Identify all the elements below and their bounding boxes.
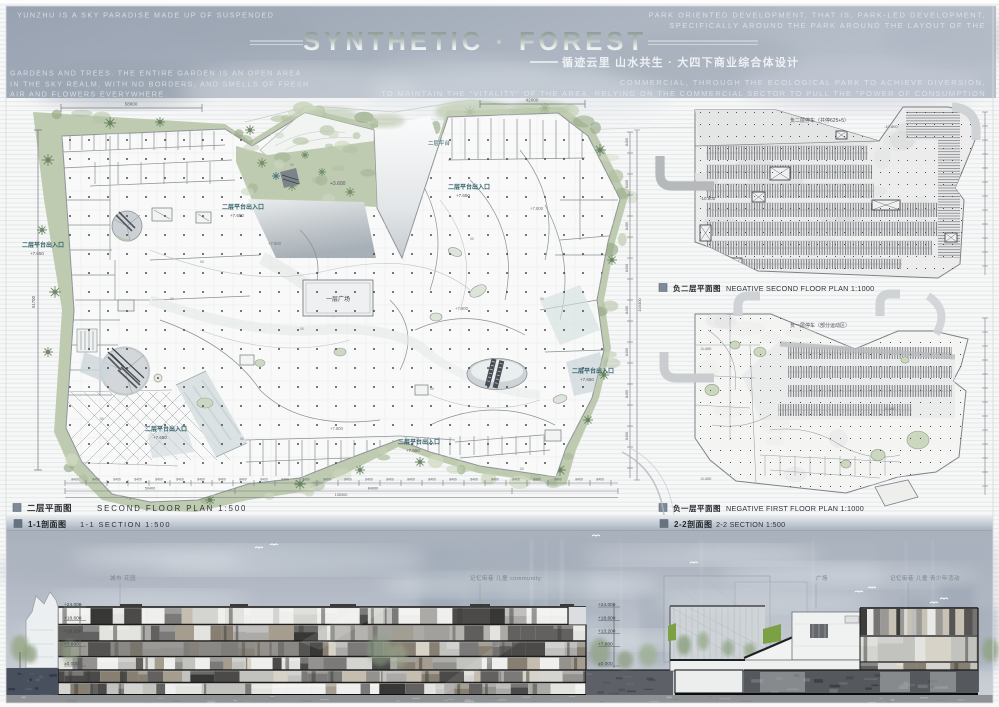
svg-text:2-2 SECTION 1:500: 2-2 SECTION 1:500: [716, 520, 785, 529]
svg-text:8400: 8400: [428, 478, 436, 482]
svg-text:42000: 42000: [526, 98, 539, 103]
svg-text:+7.800: +7.800: [455, 306, 469, 311]
svg-text:+7.650: +7.650: [406, 448, 420, 453]
svg-text:8400: 8400: [134, 478, 142, 482]
svg-text:88: 88: [540, 297, 544, 301]
svg-text:1-1 SECTION 1:500: 1-1 SECTION 1:500: [80, 520, 171, 529]
svg-text:SPECIFICALLY AROUND THE PARK A: SPECIFICALLY AROUND THE PARK AROUND THE …: [669, 21, 986, 30]
svg-text:88: 88: [300, 327, 304, 331]
svg-text:-5.400: -5.400: [700, 346, 712, 351]
svg-text:8400: 8400: [625, 390, 629, 398]
svg-text:8400: 8400: [92, 478, 100, 482]
svg-text:8400: 8400: [625, 138, 629, 146]
svg-text:84000: 84000: [368, 487, 379, 491]
svg-text:负一层停车（部分运动区）: 负一层停车（部分运动区）: [790, 322, 850, 329]
svg-text:NEGATIVE FIRST FLOOR PLAN 1:1: NEGATIVE FIRST FLOOR PLAN 1:1000: [726, 504, 864, 513]
svg-text:8400: 8400: [386, 478, 394, 482]
svg-text:88: 88: [290, 163, 294, 167]
svg-text:8400: 8400: [625, 264, 629, 272]
svg-text:广场: 广场: [816, 574, 828, 582]
svg-text:+7.650: +7.650: [456, 193, 470, 198]
svg-text:8400: 8400: [239, 478, 247, 482]
svg-text:8400: 8400: [302, 478, 310, 482]
svg-text:循迹云里 山水共生 · 大四下商业综合体设计: 循迹云里 山水共生 · 大四下商业综合体设计: [562, 55, 799, 69]
svg-text:记忆街巷 儿童 青少年活动: 记忆街巷 儿童 青少年活动: [890, 574, 960, 582]
svg-text:二层平面图: 二层平面图: [27, 503, 72, 513]
svg-text:2-2剖面图: 2-2剖面图: [674, 519, 713, 529]
svg-text:8400: 8400: [113, 478, 121, 482]
svg-text:-10.800: -10.800: [884, 124, 898, 129]
svg-text:8400: 8400: [625, 222, 629, 230]
svg-text:城市 花园: 城市 花园: [110, 574, 136, 582]
svg-text:50400: 50400: [145, 487, 156, 491]
svg-text:8400: 8400: [533, 478, 541, 482]
svg-text:135300: 135300: [335, 493, 348, 497]
svg-text:88: 88: [520, 467, 524, 471]
svg-text:+7.650: +7.650: [153, 435, 167, 440]
svg-text:二层平台出入口: 二层平台出入口: [572, 367, 614, 375]
svg-text:88: 88: [100, 417, 104, 421]
svg-text:8400: 8400: [625, 432, 629, 440]
svg-text:8400: 8400: [625, 306, 629, 314]
svg-text:8400: 8400: [281, 478, 289, 482]
svg-text:GARDENS AND TREES. THE ENTIRE: GARDENS AND TREES. THE ENTIRE GARDEN IS …: [10, 69, 302, 78]
svg-text:+7.650: +7.650: [230, 213, 244, 218]
svg-text:8400: 8400: [365, 478, 373, 482]
svg-text:8400: 8400: [625, 180, 629, 188]
svg-text:1-1剖面图: 1-1剖面图: [28, 519, 67, 529]
svg-text:8400: 8400: [218, 478, 226, 482]
svg-text:8400: 8400: [625, 348, 629, 356]
svg-text:8400: 8400: [512, 478, 520, 482]
svg-text:88: 88: [200, 260, 204, 264]
svg-text:8400: 8400: [554, 478, 562, 482]
svg-text:负一层平面图: 负一层平面图: [673, 503, 721, 513]
svg-text:COMMERCIAL, THROUGH THE ECOLOG: COMMERCIAL, THROUGH THE ECOLOGICAL PARK …: [620, 78, 986, 87]
svg-text:8400: 8400: [260, 478, 268, 482]
svg-text:8400: 8400: [323, 478, 331, 482]
svg-text:88: 88: [170, 297, 174, 301]
svg-text:负二层停车（共停625+5）: 负二层停车（共停625+5）: [790, 117, 849, 124]
svg-text:8400: 8400: [407, 478, 415, 482]
svg-text:PARK ORIENTED DEVELOPMENT, THA: PARK ORIENTED DEVELOPMENT, THAT IS, PARK…: [649, 11, 986, 20]
svg-text:88: 88: [240, 437, 244, 441]
svg-text:103400: 103400: [637, 298, 642, 312]
svg-text:+7.650: +7.650: [580, 377, 594, 382]
svg-text:+7.800: +7.800: [330, 426, 344, 431]
svg-text:-5.400: -5.400: [700, 476, 712, 481]
svg-text:8400: 8400: [344, 478, 352, 482]
svg-text:-10.800: -10.800: [700, 196, 716, 201]
svg-text:+7.800: +7.800: [268, 241, 282, 246]
svg-text:61700: 61700: [31, 295, 36, 308]
svg-text:8400: 8400: [449, 478, 457, 482]
svg-text:二层平台出入口: 二层平台出入口: [22, 241, 64, 249]
svg-text:8400: 8400: [596, 478, 604, 482]
svg-text:二层平台出入口: 二层平台出入口: [398, 438, 440, 446]
svg-text:8400: 8400: [470, 478, 478, 482]
svg-text:8400: 8400: [176, 478, 184, 482]
svg-text:+3.600: +3.600: [330, 181, 346, 187]
svg-text:8400: 8400: [71, 478, 79, 482]
svg-text:8400: 8400: [197, 478, 205, 482]
svg-text:8400: 8400: [155, 478, 163, 482]
svg-text:TO MAINTAIN THE "VITALITY" OF: TO MAINTAIN THE "VITALITY" OF THE AREA, …: [381, 89, 986, 98]
svg-text:一层广场: 一层广场: [326, 295, 350, 303]
svg-text:负二层平面图: 负二层平面图: [673, 283, 721, 293]
svg-text:YUNZHU IS A SKY PARADISE MADE: YUNZHU IS A SKY PARADISE MADE UP OF SUSP…: [17, 11, 274, 20]
svg-text:8400: 8400: [575, 478, 583, 482]
svg-text:8400: 8400: [491, 478, 499, 482]
svg-text:88: 88: [430, 387, 434, 391]
svg-text:AIR AND FLOWERS EVERYWHERE.: AIR AND FLOWERS EVERYWHERE.: [10, 90, 168, 99]
svg-text:+7.800: +7.800: [530, 206, 544, 211]
svg-text:二层平台出入口: 二层平台出入口: [222, 203, 264, 211]
svg-text:记忆街巷 儿童 community: 记忆街巷 儿童 community: [470, 574, 541, 582]
svg-text:二层平台: 二层平台: [428, 139, 451, 147]
svg-text:SYNTHETIC · FOREST: SYNTHETIC · FOREST: [303, 26, 647, 56]
svg-text:二层平台出入口: 二层平台出入口: [448, 183, 490, 191]
svg-text:SECOND FLOOR PLAN 1:500: SECOND FLOOR PLAN 1:500: [97, 504, 247, 513]
svg-text:-5.400: -5.400: [884, 406, 896, 411]
svg-text:二层平台出入口: 二层平台出入口: [145, 425, 187, 433]
svg-text:IN THE SKY REALM, WITH NO BORD: IN THE SKY REALM, WITH NO BORDERS, AND S…: [10, 80, 309, 89]
svg-text:88: 88: [470, 237, 474, 241]
svg-text:+7.650: +7.650: [30, 251, 44, 256]
svg-text:58800: 58800: [125, 102, 138, 107]
